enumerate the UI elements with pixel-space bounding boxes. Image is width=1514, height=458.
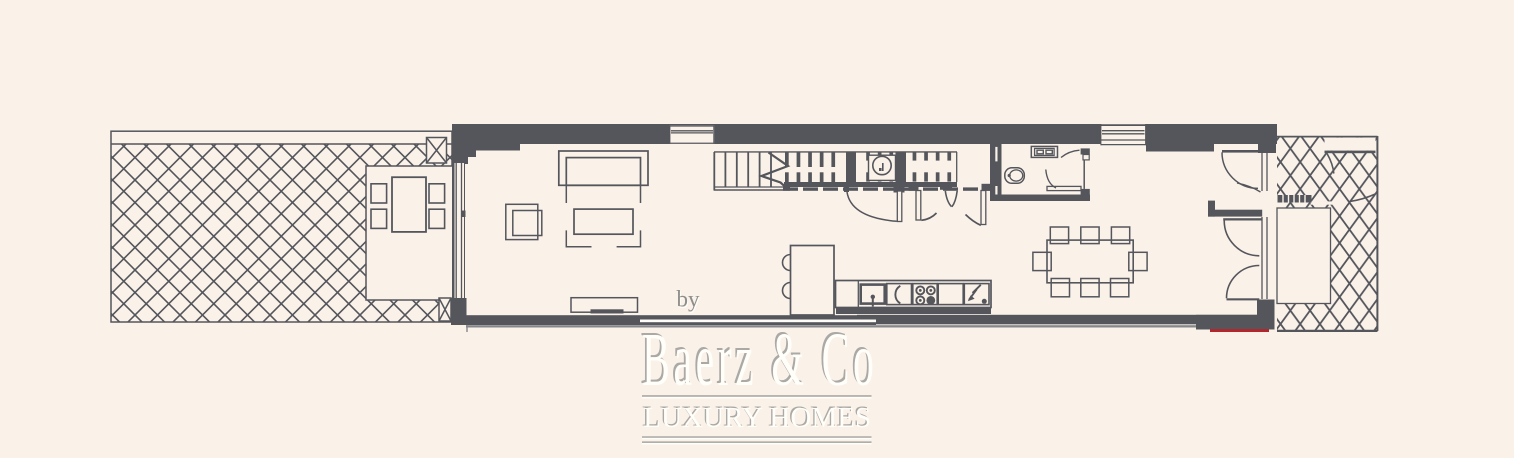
svg-text:LUXURY HOMES: LUXURY HOMES	[643, 402, 871, 434]
svg-text:by: by	[677, 287, 701, 312]
svg-text:Baerz & Co: Baerz & Co	[642, 318, 878, 402]
